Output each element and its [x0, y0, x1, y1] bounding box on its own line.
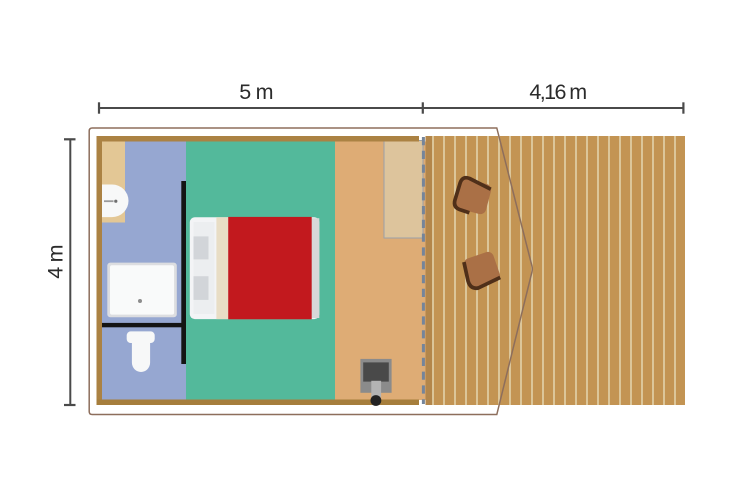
- svg-text:4,16 m: 4,16 m: [529, 80, 586, 104]
- svg-text:5 m: 5 m: [239, 80, 272, 104]
- svg-text:4 m: 4 m: [43, 245, 67, 278]
